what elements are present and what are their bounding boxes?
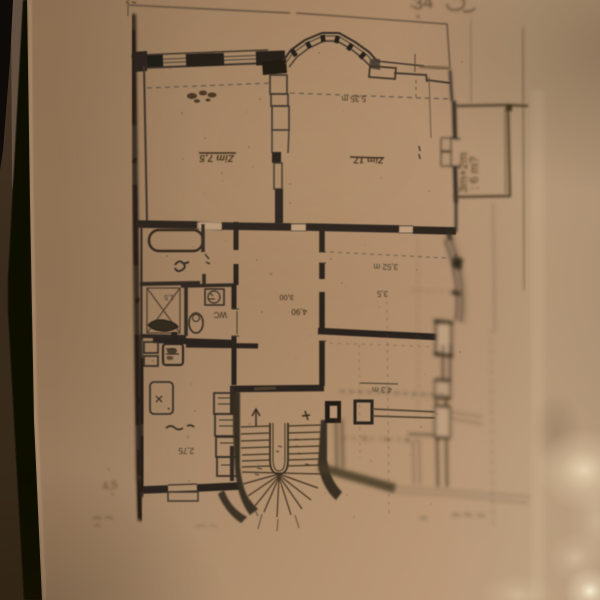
svg-text:2,75: 2,75 — [178, 446, 194, 455]
